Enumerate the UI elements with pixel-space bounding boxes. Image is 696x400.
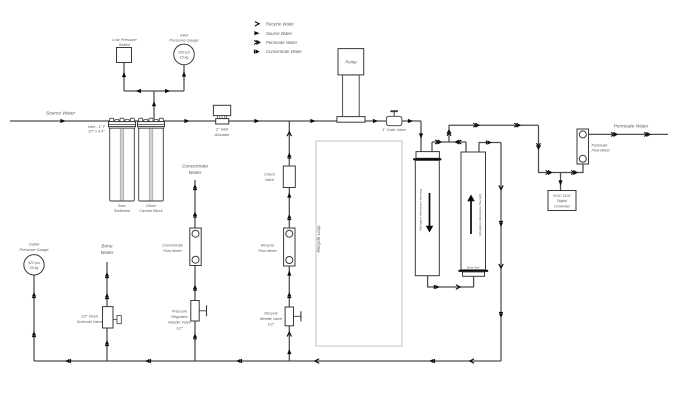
svg-text:Digital: Digital — [557, 199, 567, 203]
svg-text:Concentrate: Concentrate — [162, 244, 183, 248]
svg-text:Solenoid Valve: Solenoid Valve — [77, 320, 102, 324]
svg-text:Brine: Brine — [101, 244, 113, 250]
svg-text:Water: Water — [101, 250, 114, 256]
svg-text:Recycle Loop: Recycle Loop — [316, 225, 321, 253]
svg-text:Pressure: Pressure — [172, 310, 187, 314]
svg-text:Fiberglass Membrane Housing: Fiberglass Membrane Housing — [478, 194, 482, 236]
svg-text:Recycle: Recycle — [261, 244, 275, 248]
svg-text:1/2": 1/2" — [268, 323, 275, 327]
svg-text:1/2": 1/2" — [176, 326, 183, 330]
svg-text:Fiberglass Membrane Housing: Fiberglass Membrane Housing — [418, 189, 422, 231]
svg-text:Pump: Pump — [345, 59, 357, 64]
svg-text:ROC 2101: ROC 2101 — [553, 194, 570, 198]
svg-text:Permeate Water: Permeate Water — [614, 124, 649, 130]
svg-text:Flow Meter: Flow Meter — [592, 149, 611, 153]
svg-text:Source Water: Source Water — [266, 31, 293, 36]
svg-text:Actuator: Actuator — [214, 132, 231, 137]
svg-text:Needle Valve: Needle Valve — [168, 321, 190, 325]
svg-text:Pressure Gauge: Pressure Gauge — [19, 247, 49, 252]
svg-text:Inlet - 1" F: Inlet - 1" F — [88, 125, 106, 129]
svg-text:20" x 4.5": 20" x 4.5" — [87, 129, 105, 133]
svg-text:Valve: Valve — [265, 178, 274, 182]
svg-text:2" Inlet: 2" Inlet — [215, 126, 229, 131]
svg-text:10mic: 10mic — [146, 203, 156, 208]
svg-text:15 kg: 15 kg — [180, 55, 189, 59]
svg-text:Recycle: Recycle — [264, 312, 278, 316]
svg-text:Carbon Block: Carbon Block — [139, 208, 163, 213]
svg-text:Brine Seal: Brine Seal — [467, 266, 480, 270]
svg-text:520 psi: 520 psi — [28, 261, 40, 265]
svg-text:Check: Check — [264, 173, 276, 177]
svg-text:Concentrate: Concentrate — [182, 164, 208, 170]
svg-text:Controller: Controller — [554, 204, 571, 208]
svg-text:Concentrate Water: Concentrate Water — [266, 49, 303, 54]
svg-text:Regulator: Regulator — [171, 315, 188, 319]
svg-text:Needle Valve: Needle Valve — [260, 317, 282, 321]
svg-text:Permeate Water: Permeate Water — [266, 40, 298, 45]
svg-text:35 kg: 35 kg — [30, 266, 39, 270]
svg-text:Pressure Gauge: Pressure Gauge — [169, 38, 199, 43]
svg-text:Water: Water — [189, 170, 202, 176]
svg-text:200 psi: 200 psi — [177, 50, 190, 54]
svg-text:Flow Meter: Flow Meter — [258, 249, 278, 253]
svg-text:Recycle Water: Recycle Water — [266, 21, 294, 26]
svg-text:1" Gate Valve: 1" Gate Valve — [382, 127, 407, 132]
svg-text:Sediment: Sediment — [114, 208, 131, 213]
svg-text:Outlet: Outlet — [29, 241, 41, 246]
svg-text:Switch: Switch — [119, 42, 132, 47]
svg-text:Permeate: Permeate — [592, 143, 608, 147]
svg-text:Flow Meter: Flow Meter — [163, 249, 183, 253]
svg-text:5mic: 5mic — [118, 203, 126, 208]
svg-text:1/2" Flush: 1/2" Flush — [81, 315, 98, 319]
svg-text:Source Water: Source Water — [46, 111, 76, 117]
